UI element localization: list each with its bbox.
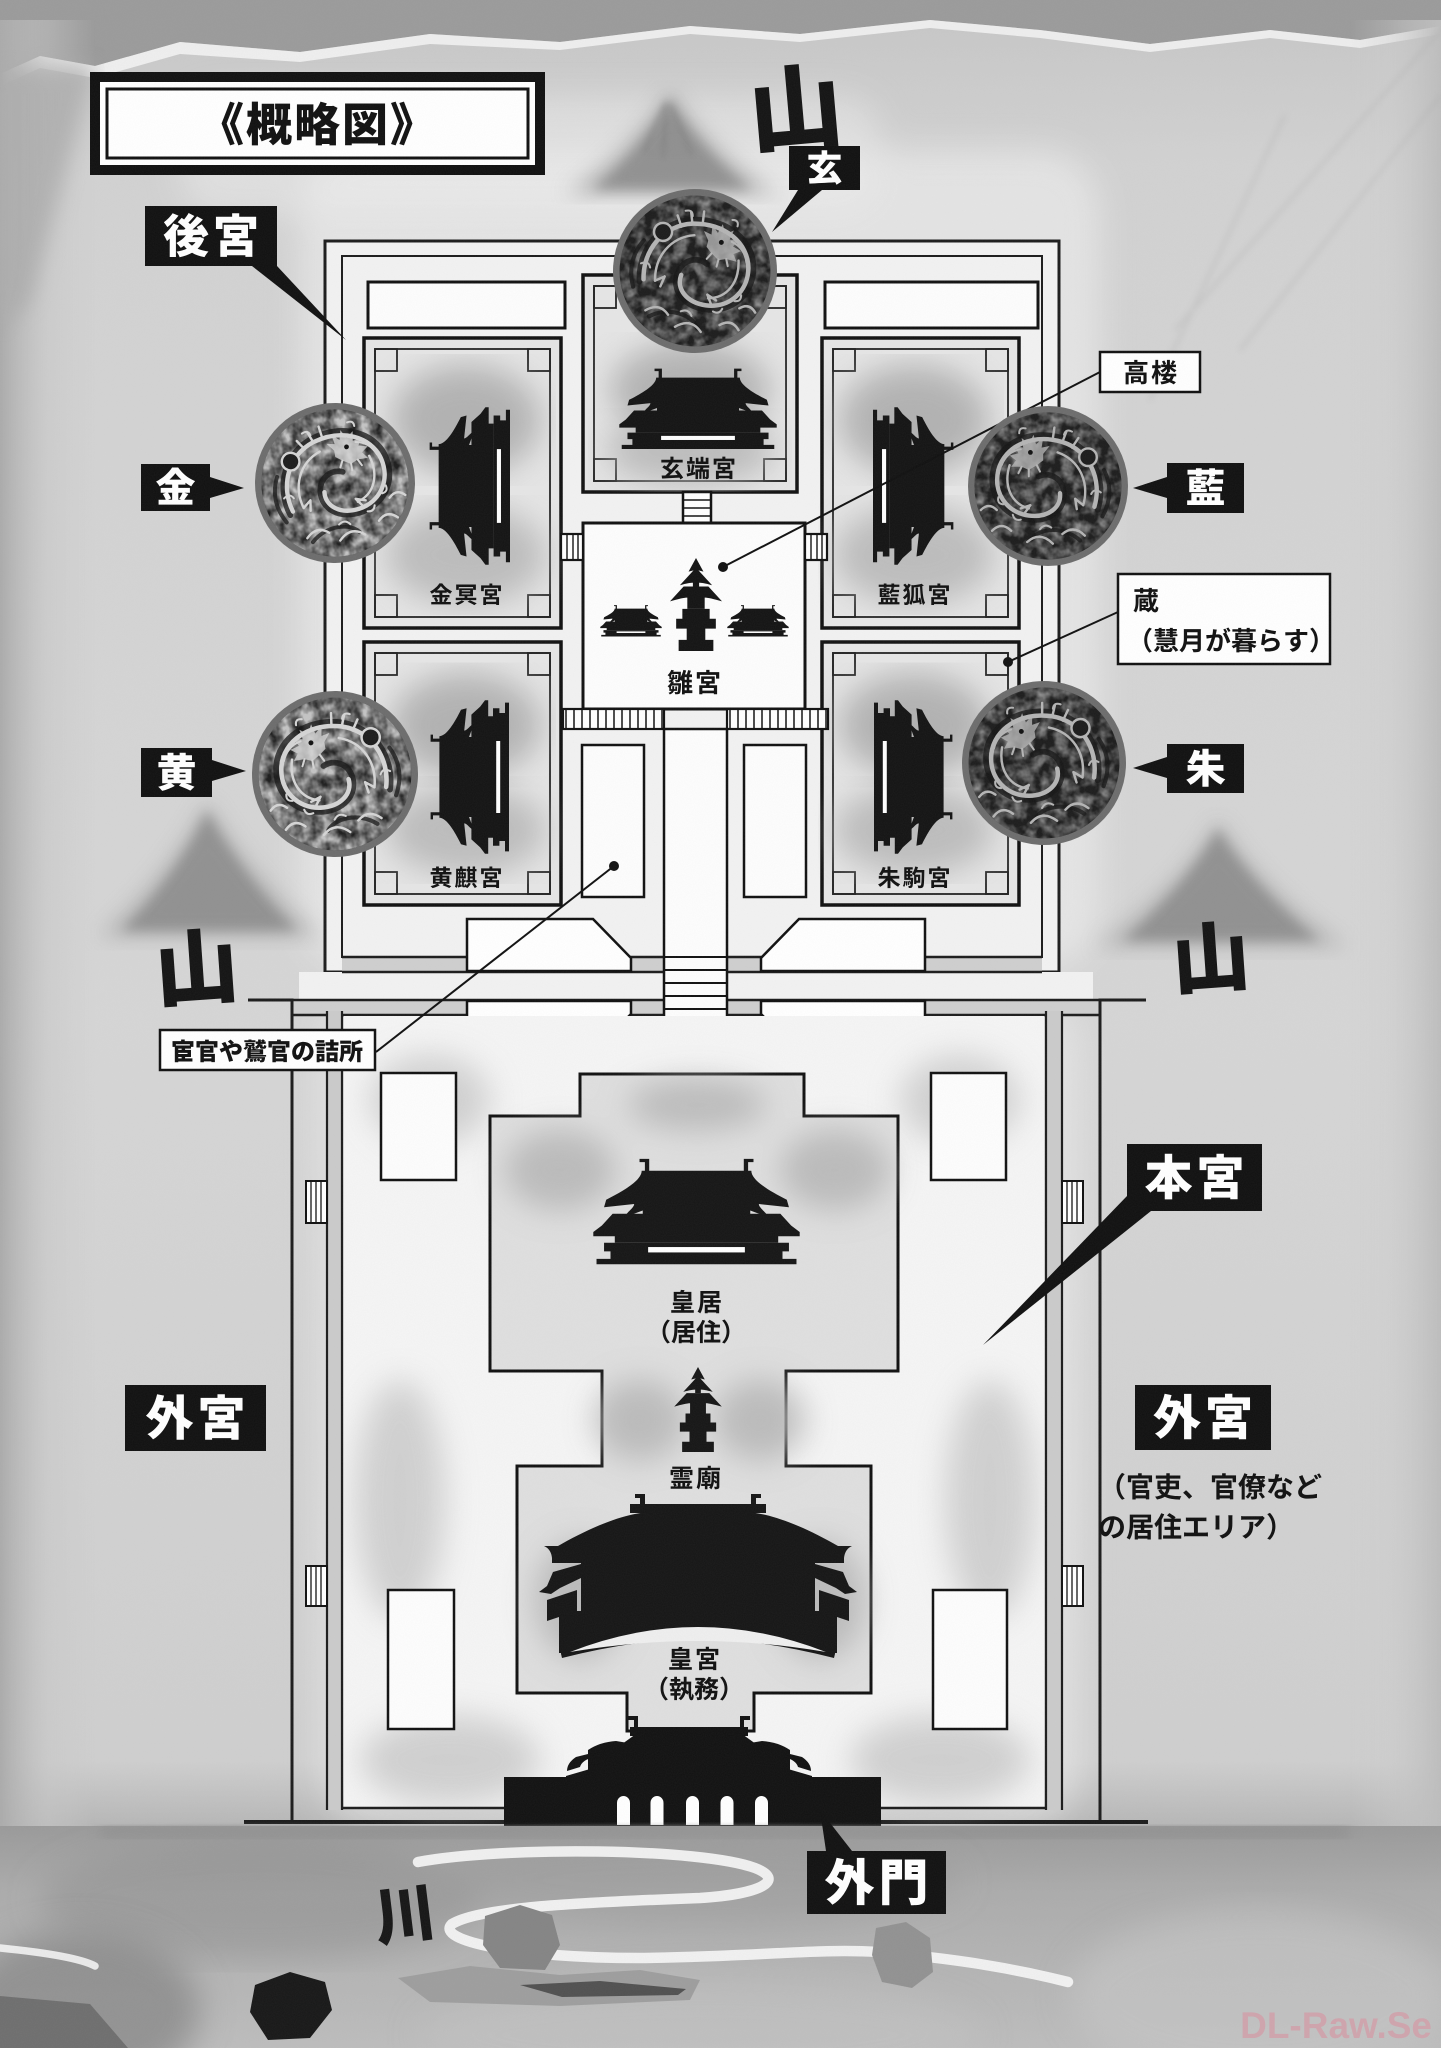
svg-text:DL-Raw.Se: DL-Raw.Se: [1240, 2005, 1432, 2046]
